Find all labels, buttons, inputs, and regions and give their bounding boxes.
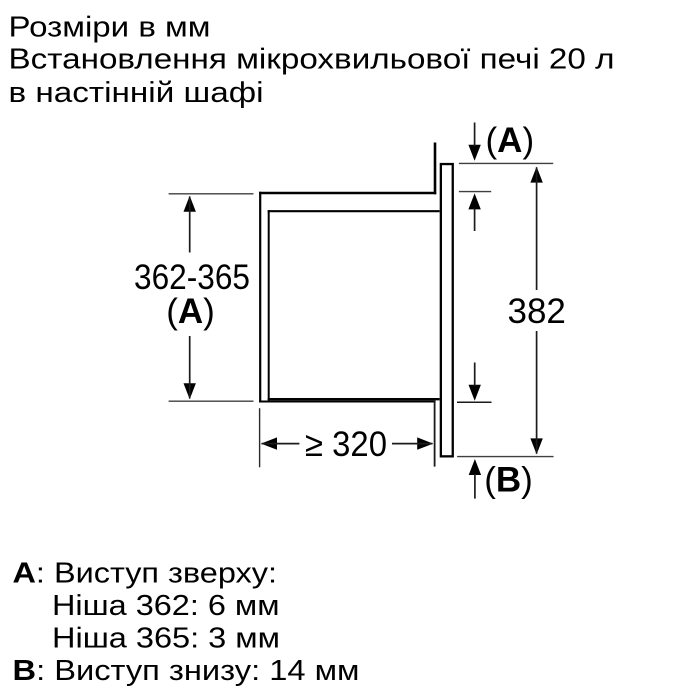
svg-text:≥ 320: ≥ 320 xyxy=(305,425,387,464)
svg-text:Ніша 365: 3 мм: Ніша 365: 3 мм xyxy=(52,623,280,655)
svg-text:382: 382 xyxy=(507,292,565,331)
svg-text:Встановлення мікрохвильової пе: Встановлення мікрохвильової печі 20 л xyxy=(9,44,615,76)
svg-text:(B): (B) xyxy=(484,461,533,500)
svg-text:Ніша 362: 6 мм: Ніша 362: 6 мм xyxy=(52,590,280,622)
svg-text:Розміри в мм: Розміри в мм xyxy=(9,12,211,44)
svg-text:A: Виступ зверху:: A: Виступ зверху: xyxy=(13,558,278,590)
svg-text:(A): (A) xyxy=(166,292,215,331)
svg-text:в настінній шафі: в настінній шафі xyxy=(9,77,264,109)
svg-text:B: Виступ знизу: 14 мм: B: Виступ знизу: 14 мм xyxy=(13,655,360,687)
svg-text:(A): (A) xyxy=(486,121,535,160)
